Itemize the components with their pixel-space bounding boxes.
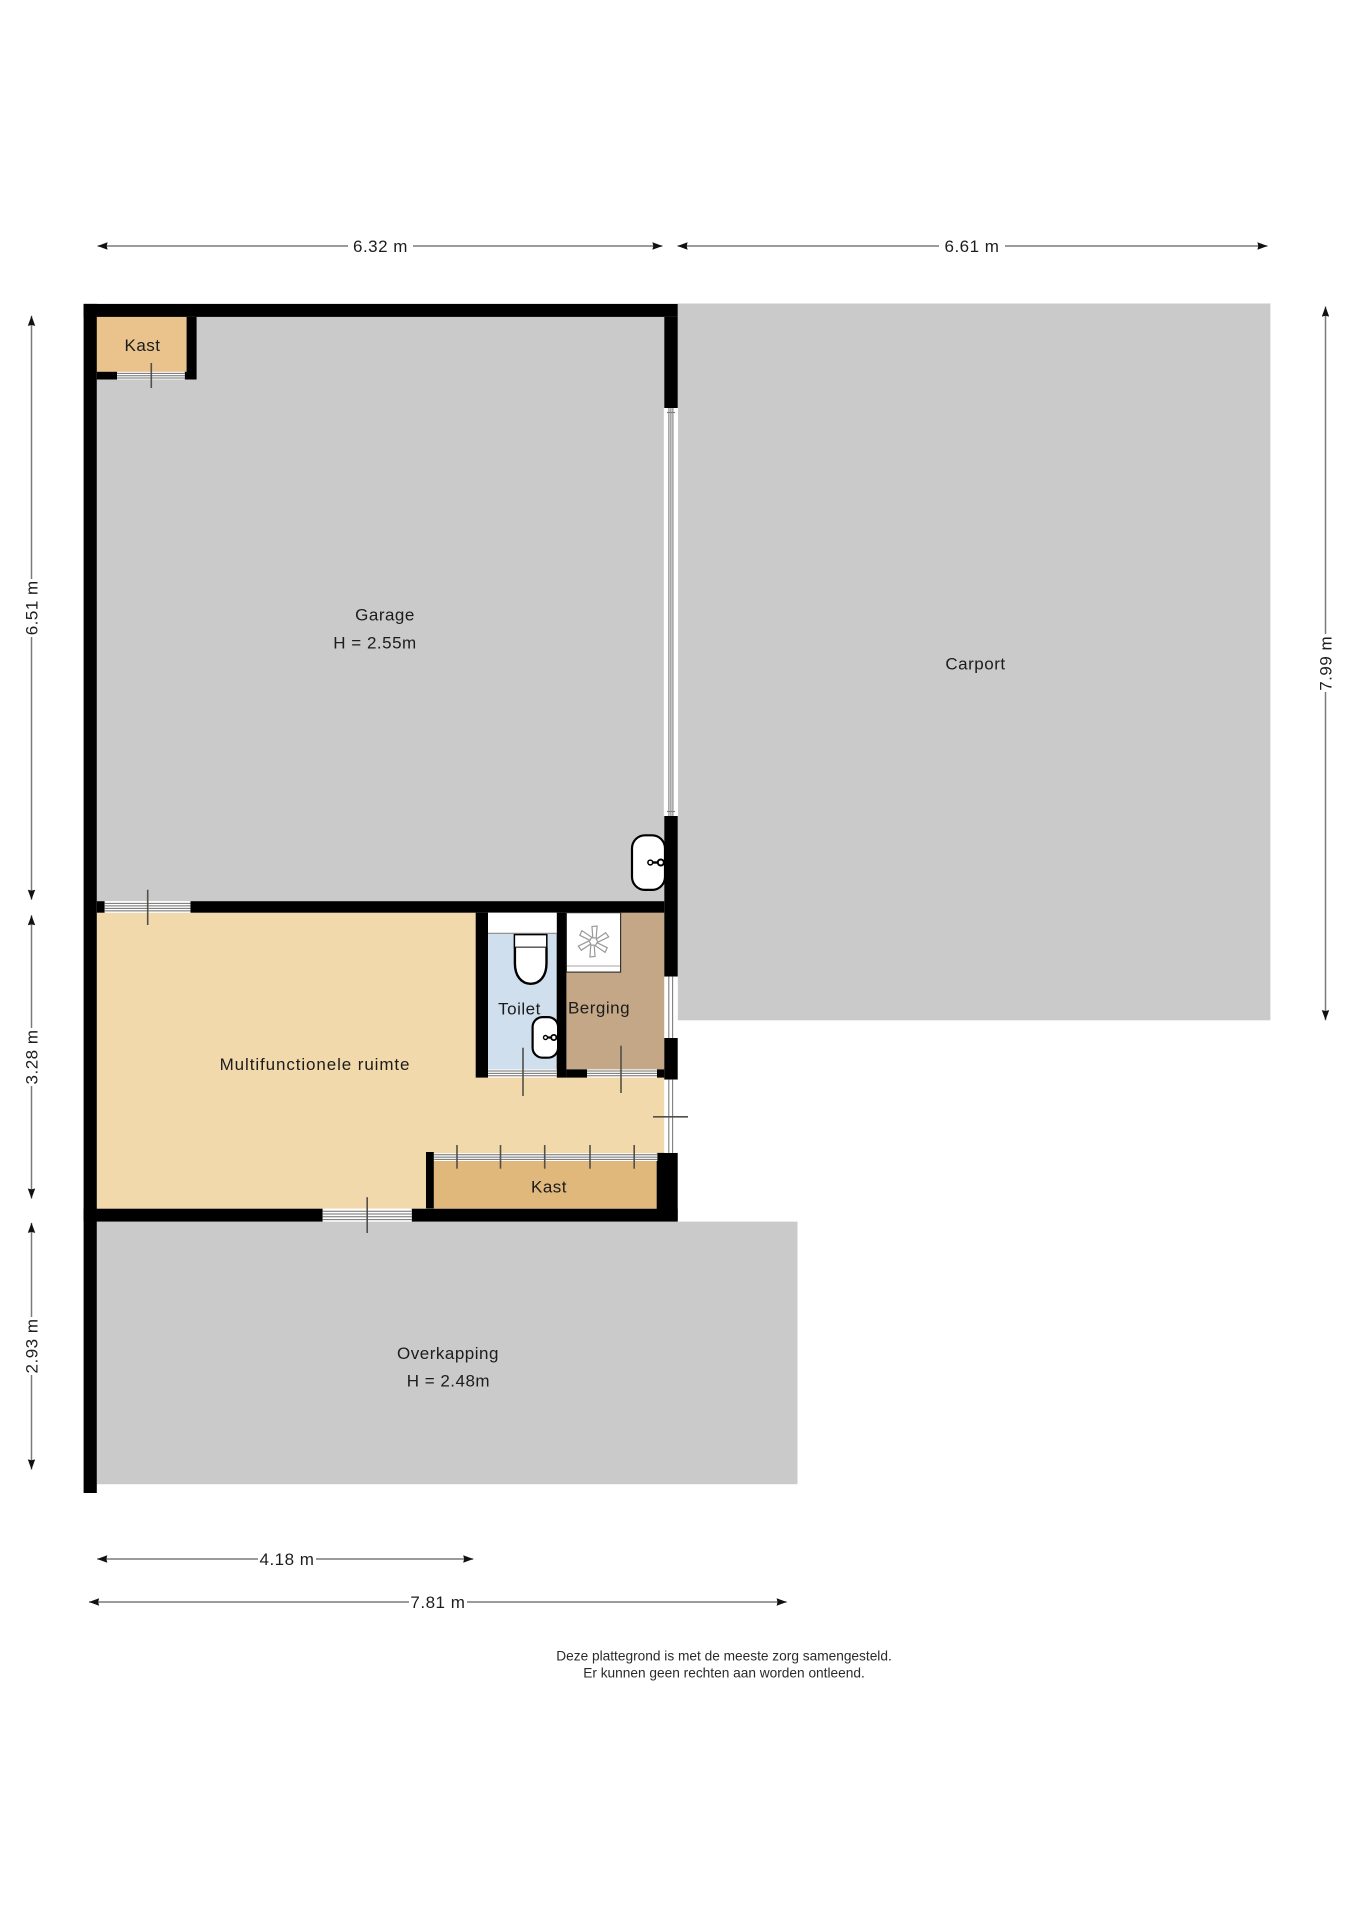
svg-text:Overkapping: Overkapping [397,1344,499,1363]
svg-text:3.28 m: 3.28 m [23,1030,42,1085]
svg-text:H = 2.48m: H = 2.48m [407,1371,490,1390]
svg-text:Berging: Berging [568,999,630,1018]
svg-text:Garage: Garage [355,606,415,625]
svg-text:6.61 m: 6.61 m [945,237,1000,256]
svg-text:Carport: Carport [945,655,1005,674]
svg-text:7.81 m: 7.81 m [410,1593,465,1612]
svg-text:6.32 m: 6.32 m [353,237,408,256]
svg-text:Er kunnen geen rechten aan wor: Er kunnen geen rechten aan worden ontlee… [583,1666,865,1681]
svg-text:2.93 m: 2.93 m [23,1319,42,1374]
svg-text:Kast: Kast [531,1178,567,1197]
svg-text:H = 2.55m: H = 2.55m [333,634,416,653]
svg-text:6.51 m: 6.51 m [23,580,42,635]
svg-text:Deze plattegrond is met de mee: Deze plattegrond is met de meeste zorg s… [556,1649,892,1664]
svg-text:Toilet: Toilet [498,1000,541,1019]
svg-text:7.99 m: 7.99 m [1317,636,1336,691]
svg-text:Kast: Kast [124,336,160,355]
svg-text:4.18 m: 4.18 m [260,1550,315,1569]
svg-text:Multifunctionele ruimte: Multifunctionele ruimte [220,1055,411,1074]
